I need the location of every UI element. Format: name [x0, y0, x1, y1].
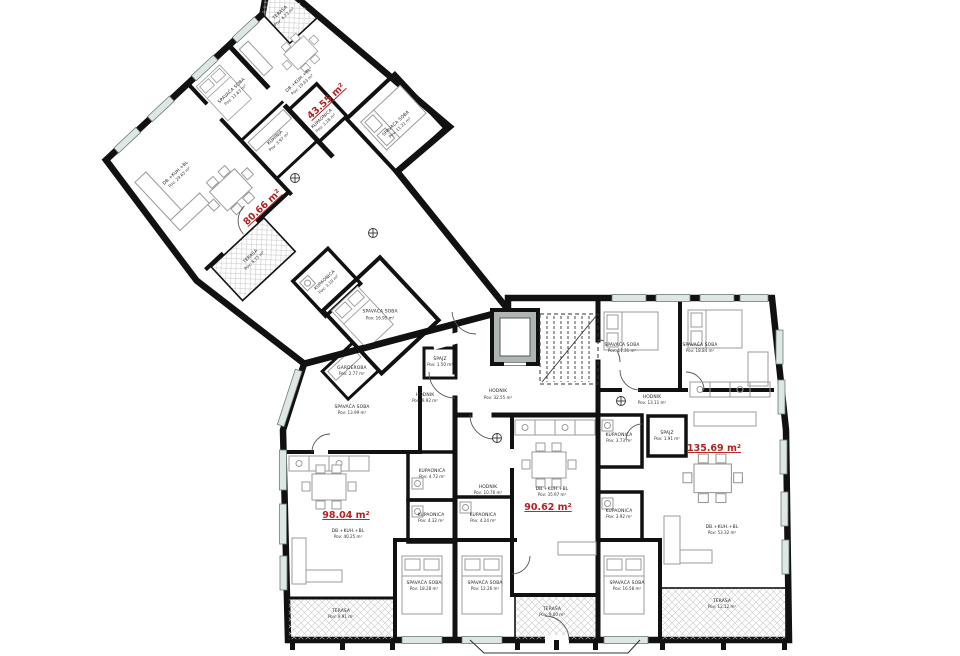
wall — [78, 0, 568, 452]
terrace-90 — [515, 595, 598, 640]
room-label: ŠPAJZ — [660, 429, 673, 436]
marker-icon — [291, 174, 300, 183]
room-area: Pov: 16.95 m² — [366, 316, 395, 321]
kitchen-island-furniture — [694, 412, 756, 426]
staircase[interactable] — [540, 314, 598, 384]
sofa-furniture — [558, 542, 596, 555]
apartment-area-label: 135.69 m² — [687, 443, 741, 454]
room-area: Pov: 9.00 m² — [539, 612, 565, 617]
room-area: Pov: 13.99 m² — [338, 410, 367, 415]
wing-rotated-section: TERASA Pov: 4.23 m² DB.+KUH.+BL Pov: 19.… — [77, 0, 568, 452]
room-area: Pov: 13.11 m² — [638, 400, 667, 405]
washer-furniture — [460, 502, 471, 513]
kitchen-counter-furniture — [515, 420, 595, 435]
marker-icon — [617, 397, 626, 406]
apartment-area-label: 90.62 m² — [524, 502, 571, 513]
washer-furniture — [412, 478, 423, 489]
washer-furniture — [602, 420, 613, 431]
room-area: Pov: 4.72 m² — [419, 474, 445, 479]
dining-table-furniture — [683, 454, 742, 502]
sofa-furniture — [680, 550, 712, 563]
room-label: HODNIK — [489, 388, 508, 394]
room-area: Pov: 9.92 m² — [412, 398, 438, 403]
room-area: Pov: 35.97 m² — [538, 492, 567, 497]
room-area: Pov: 11.31 m² — [608, 348, 637, 353]
main-body-section: HODNIK Pov: 32.55 m² HODNIK Pov: 9.92 m²… — [277, 295, 789, 654]
wall — [277, 141, 318, 179]
room-area: Pov: 10.76 m² — [474, 490, 503, 495]
room-area: Pov: 18.84 m² — [686, 348, 715, 353]
room-area: Pov: 40.25 m² — [334, 534, 363, 539]
room-label: ŠPAJZ — [433, 355, 446, 362]
room-label: SPAVAĆA SOBA — [363, 308, 398, 315]
sofa-furniture — [306, 570, 342, 582]
room-label: SPAVAĆA SOBA — [467, 579, 502, 586]
dining-table-furniture — [522, 443, 576, 487]
room-label: SPAVAĆA SOBA — [334, 403, 369, 410]
room-area: Pov: 1.50 m² — [427, 362, 453, 367]
marker-icon — [493, 434, 502, 443]
room-label: SPAVAĆA SOBA — [609, 579, 644, 586]
sofa-furniture — [664, 516, 680, 564]
room-area: Pov: 3.73 m² — [606, 438, 632, 443]
wardrobe-furniture — [748, 352, 768, 386]
room-area: Pov: 2.77 m² — [339, 371, 365, 376]
room-label: SPAVAĆA SOBA — [406, 579, 441, 586]
room-label: SPAVAĆA SOBA — [604, 341, 639, 348]
terrace-135 — [660, 588, 786, 640]
room-area: Pov: 12.26 m² — [471, 586, 500, 591]
floorplan-canvas: TERASA Pov: 4.23 m² DB.+KUH.+BL Pov: 19.… — [0, 0, 960, 656]
washer-furniture — [602, 498, 613, 509]
room-area: Pov: 9.91 m² — [328, 614, 354, 619]
apartment-area-label: 98.04 m² — [322, 510, 369, 521]
elevator — [492, 310, 538, 364]
dining-table-furniture — [302, 465, 356, 509]
room-area: Pov: 53.32 m² — [708, 530, 737, 535]
sofa-furniture — [292, 538, 306, 584]
room-area: Pov: 3.92 m² — [606, 514, 632, 519]
terrace-98 — [288, 598, 395, 640]
floorplan-svg: TERASA Pov: 4.23 m² DB.+KUH.+BL Pov: 19.… — [0, 0, 960, 656]
room-area: Pov: 4.32 m² — [418, 518, 444, 523]
room-area: Pov: 4.24 m² — [470, 518, 496, 523]
room-area: Pov: 18.28 m² — [410, 586, 439, 591]
marker-icon — [369, 229, 378, 238]
room-area: Pov: 1.91 m² — [654, 436, 680, 441]
room-area: Pov: 16.58 m² — [613, 586, 642, 591]
room-area: Pov: 32.55 m² — [484, 395, 513, 400]
kitchen-counter-furniture — [289, 456, 369, 471]
room-label: SPAVAĆA SOBA — [682, 341, 717, 348]
room-area: Pov: 12.12 m² — [708, 604, 737, 609]
